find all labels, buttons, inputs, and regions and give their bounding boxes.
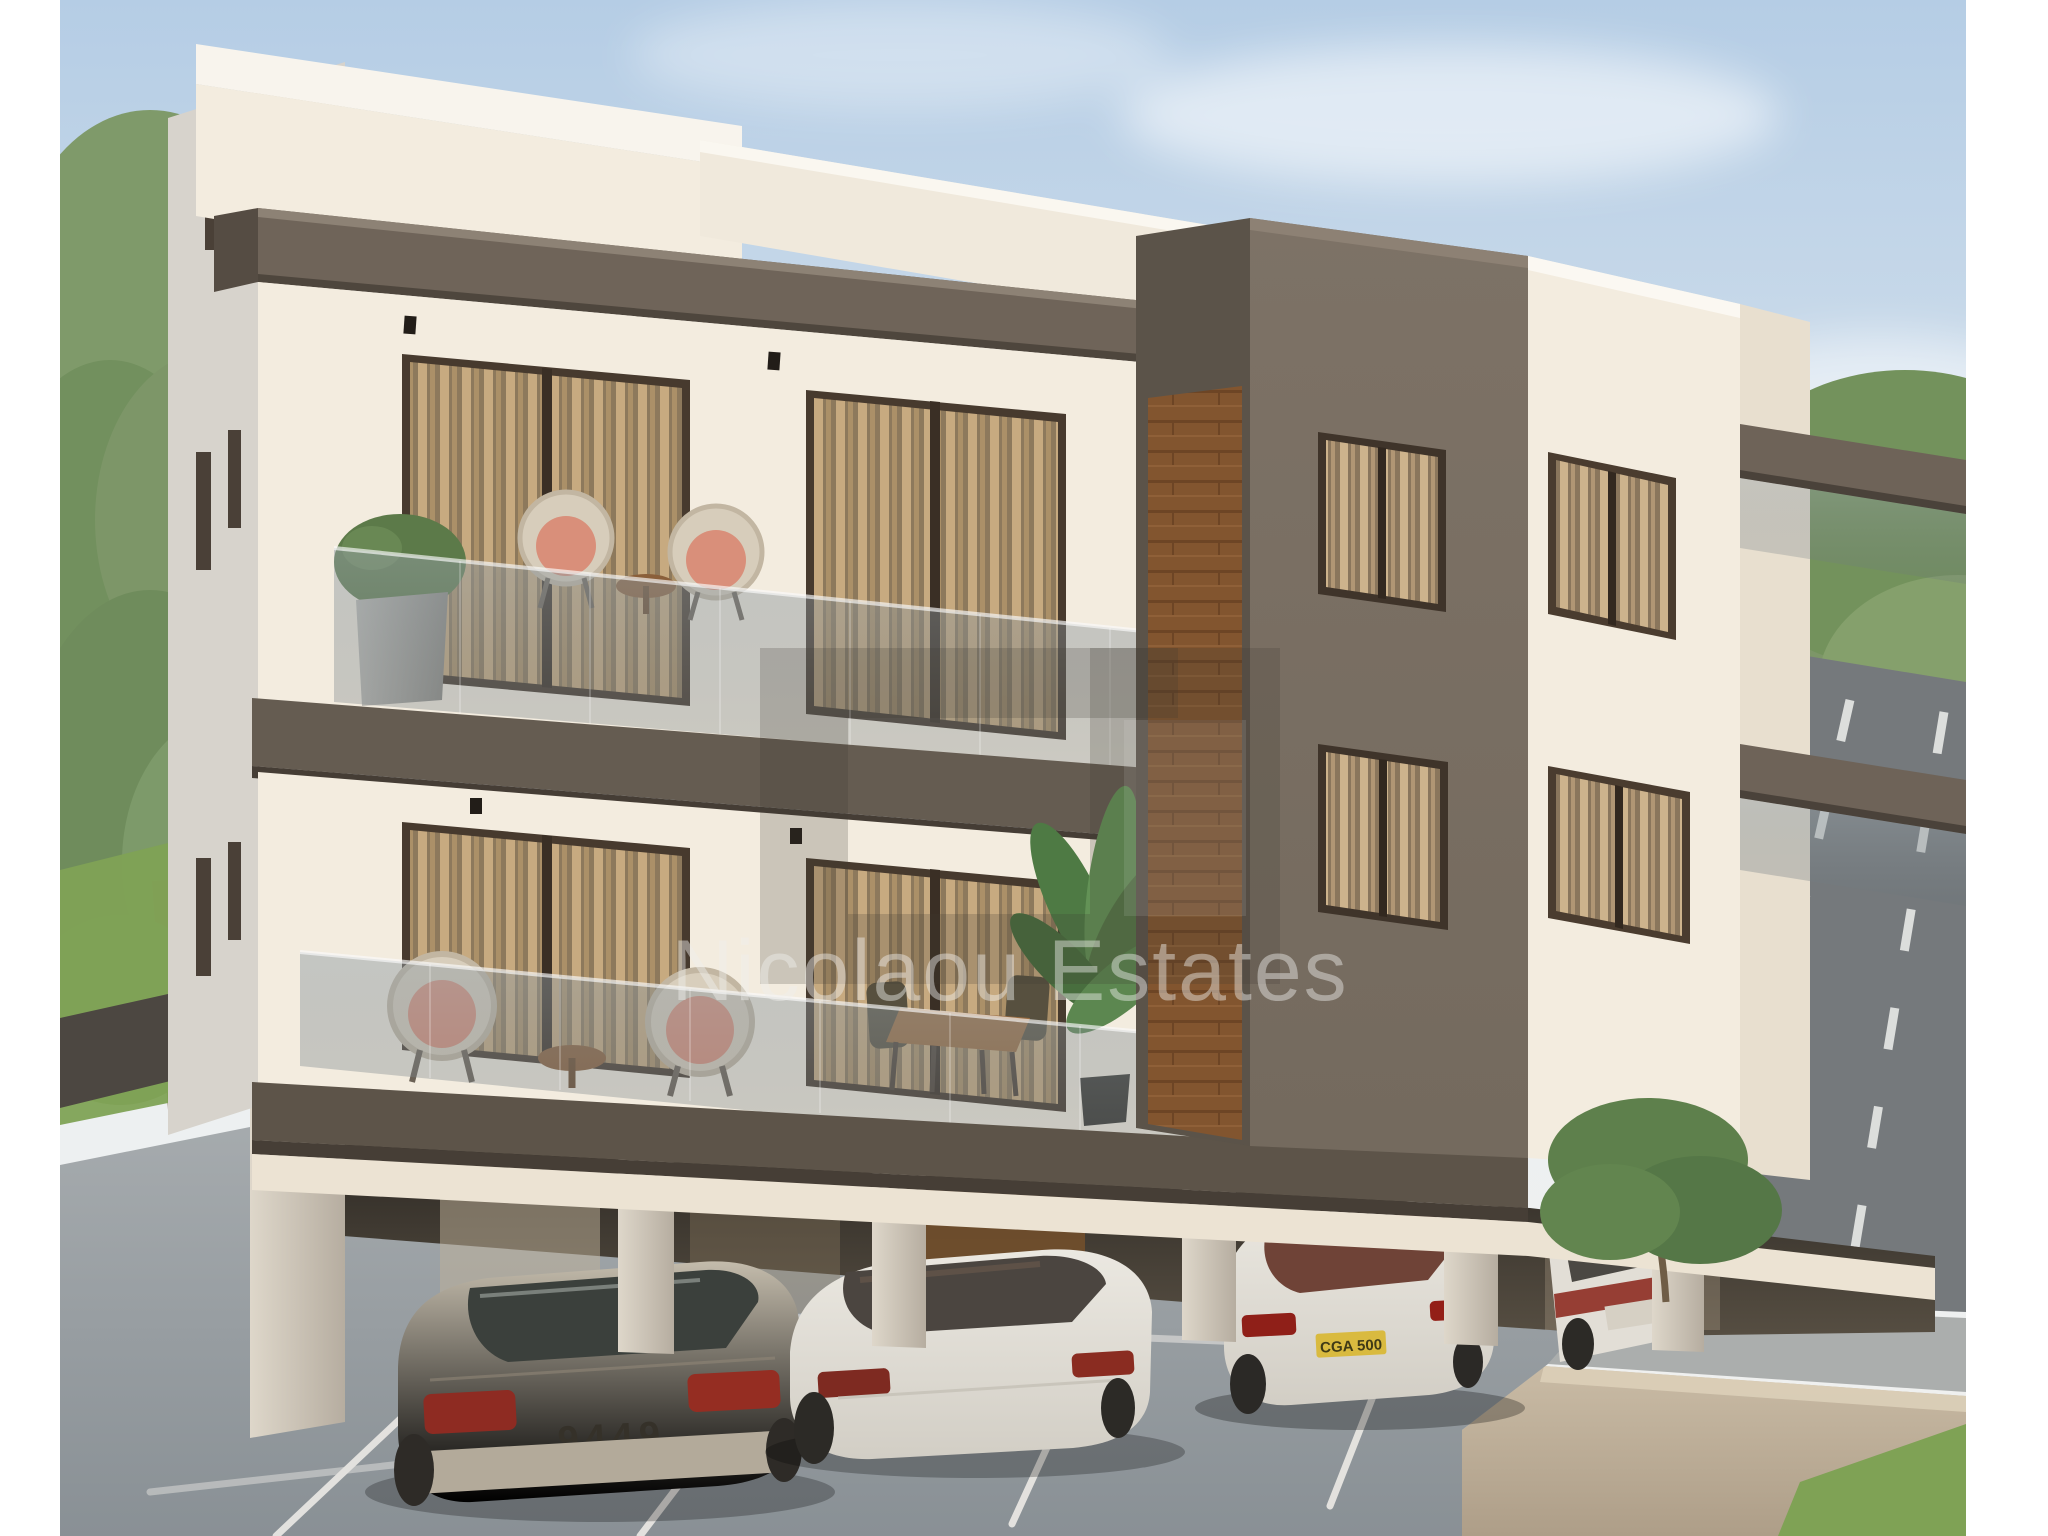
car-wheel bbox=[394, 1434, 434, 1506]
photo-margin-right bbox=[1966, 0, 2048, 1536]
canopy-end-cap bbox=[214, 208, 258, 292]
tail-light bbox=[687, 1370, 781, 1413]
property-listing-photo: 9449 CGA 500 bbox=[0, 0, 2048, 1536]
watermark-text: Nicolaou Estates bbox=[671, 923, 1348, 1019]
tail-light bbox=[423, 1390, 517, 1435]
photo-margin-left bbox=[0, 0, 60, 1536]
render-scene: 9449 CGA 500 bbox=[0, 0, 2048, 1536]
license-plate-bentley-text: CGA 500 bbox=[1320, 1336, 1383, 1356]
car-sedan-champagne: 9449 bbox=[365, 1261, 835, 1522]
downlight bbox=[403, 316, 416, 335]
right-wing-facade bbox=[1528, 256, 1740, 1172]
coral-cushion bbox=[536, 516, 596, 576]
car-wheel bbox=[1562, 1318, 1594, 1370]
tail-light bbox=[1071, 1350, 1134, 1378]
downlight bbox=[767, 352, 780, 371]
coral-cushion bbox=[686, 530, 746, 590]
tower-window-upper bbox=[1318, 432, 1446, 612]
car-wheel bbox=[1101, 1378, 1135, 1438]
tower-window-lower bbox=[1318, 744, 1448, 930]
downlight bbox=[470, 798, 482, 814]
car-wheel bbox=[794, 1392, 834, 1464]
tail-light bbox=[817, 1368, 890, 1398]
window-right-lower bbox=[1548, 766, 1690, 944]
window-right-upper bbox=[1548, 452, 1676, 640]
car-wheel bbox=[1230, 1354, 1266, 1414]
tail-light bbox=[1241, 1313, 1296, 1338]
